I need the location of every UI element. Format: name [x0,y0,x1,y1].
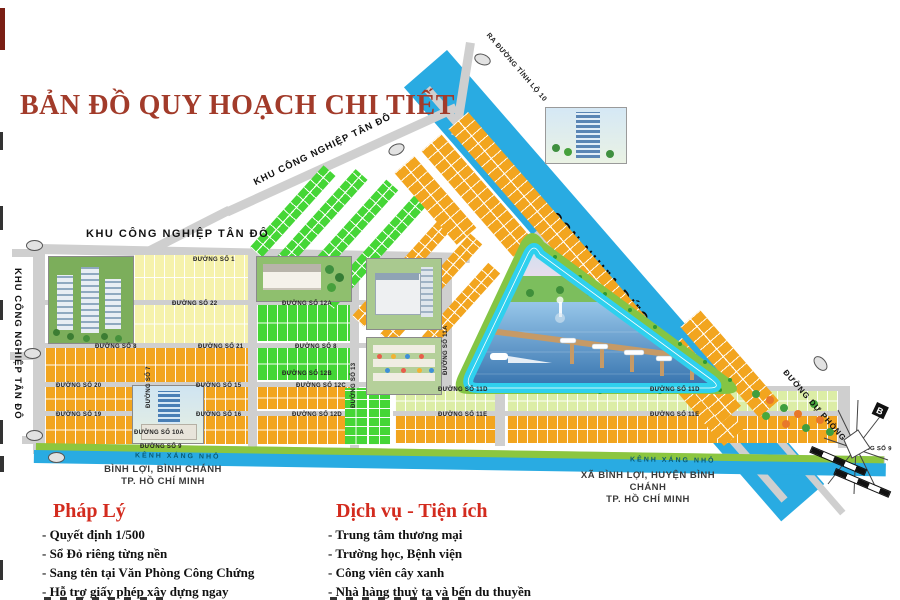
locality-right: XÃ BÌNH LỢI, HUYỆN BÌNH CHÁNH TP. HỒ CHÍ… [563,470,733,506]
road-label-no8: ĐƯỜNG SỐ 8 [295,344,337,350]
road-label-no11d: ĐƯỜNG SỐ 11D [438,387,488,393]
services-item: - Công viên cây xanh [328,565,444,581]
lot-row [507,416,838,443]
highrise-render [545,107,627,164]
road-label-no12a: ĐƯỜNG SỐ 12A [282,301,332,307]
road-label-no12d: ĐƯỜNG SỐ 12D [292,412,342,418]
kcn-label-top: KHU CÔNG NGHIỆP TÂN ĐÔ [86,228,269,240]
road-label-no20: ĐƯỜNG SỐ 20 [56,383,101,389]
apartment-render [48,256,134,344]
road-label-no11e: ĐƯỜNG SỐ 11E [438,412,487,418]
edge-mark [0,132,3,150]
master-plan-map: BẢN ĐỒ QUY HOẠCH CHI TIẾT CCN NHỰA ĐỨC H… [0,0,900,600]
culvert-icon [48,452,65,463]
locality-right-line2: TP. HỒ CHÍ MINH [563,494,733,506]
fountain-base [555,313,565,323]
road-label-no19: ĐƯỜNG SỐ 19 [56,412,101,418]
lot-row [257,305,350,341]
road-label-no11d: ĐƯỜNG SỐ 11D [650,387,700,393]
road-label-no11e: ĐƯỜNG SỐ 11E [650,412,699,418]
edge-mark [0,206,3,230]
road-label-no12c: ĐƯỜNG SỐ 12C [296,383,346,389]
edge-mark [0,456,4,472]
lot-row [257,416,350,444]
road-label-no1: ĐƯỜNG SỐ 1 [193,257,235,263]
legal-header: Pháp Lý [53,500,126,523]
culvert-icon [473,51,493,67]
locality-right-line1: XÃ BÌNH LỢI, HUYỆN BÌNH CHÁNH [563,470,733,494]
clubhouse [605,280,629,290]
road-label-no8: ĐƯỜNG SỐ 8 [95,344,137,350]
culvert-icon [386,141,406,158]
legal-item: - Quyết định 1/500 [42,527,145,543]
locality-left-line1: BÌNH LỢI, BÌNH CHÁNH [93,464,233,476]
legal-item: - Sổ Đỏ riêng từng nền [42,546,167,562]
lot-row [134,305,248,343]
road-label-no9: ĐƯỜNG SỐ 9 [140,444,182,450]
exit-road-label: RA ĐƯỜNG TỈNH LỘ 10 [485,32,548,103]
road-label-no21: ĐƯỜNG SỐ 21 [198,344,243,350]
lot-row [395,416,495,443]
road-label-no7: ĐƯỜNG SỐ 7 [146,366,152,408]
road-label-no16: ĐƯỜNG SỐ 16 [196,412,241,418]
lot-row [257,387,350,409]
culvert-icon [24,348,41,359]
legal-item: - Sang tên tại Văn Phòng Công Chứng [42,565,254,581]
edge-mark [0,560,3,580]
culvert-icon [26,240,43,251]
clubhouse-roof [605,276,629,281]
road-label-no11a: ĐƯỜNG SỐ 11A [443,325,449,375]
school-render [256,256,352,302]
speedboat [490,353,508,360]
page-title: BẢN ĐỒ QUY HOẠCH CHI TIẾT [20,90,455,122]
lot-column [369,388,390,445]
lake-sky [450,236,760,282]
canal-label-right: KÊNH XÁNG NHỎ [630,456,716,464]
road-label-no12b: ĐƯỜNG SỐ 12B [282,371,332,377]
edge-mark [0,420,3,444]
edge-mark [0,8,5,50]
locality-left: BÌNH LỢI, BÌNH CHÁNH TP. HỒ CHÍ MINH [93,464,233,488]
services-item: - Trường học, Bệnh viện [328,546,462,562]
services-header: Dịch vụ - Tiện ích [336,500,488,523]
locality-left-line2: TP. HỒ CHÍ MINH [93,476,233,488]
kcn-label-left: KHU CÔNG NGHIỆP TÂN ĐÔ [12,268,23,428]
road-label-no13: ĐƯỜNG SỐ 13 [351,363,357,408]
lake [420,222,780,407]
services-item: - Trung tâm thương mại [328,527,462,543]
fountain-spray [557,297,564,304]
culvert-icon [811,353,830,373]
edge-mark [0,300,3,320]
road-label-no10a: ĐƯỜNG SỐ 10A [134,430,184,436]
road-label-no15: ĐƯỜNG SỐ 15 [196,383,241,389]
culvert-icon [26,430,43,441]
road-label-no22: ĐƯỜNG SỐ 22 [172,301,217,307]
canal-label-left: KÊNH XÁNG NHỎ [135,452,221,460]
